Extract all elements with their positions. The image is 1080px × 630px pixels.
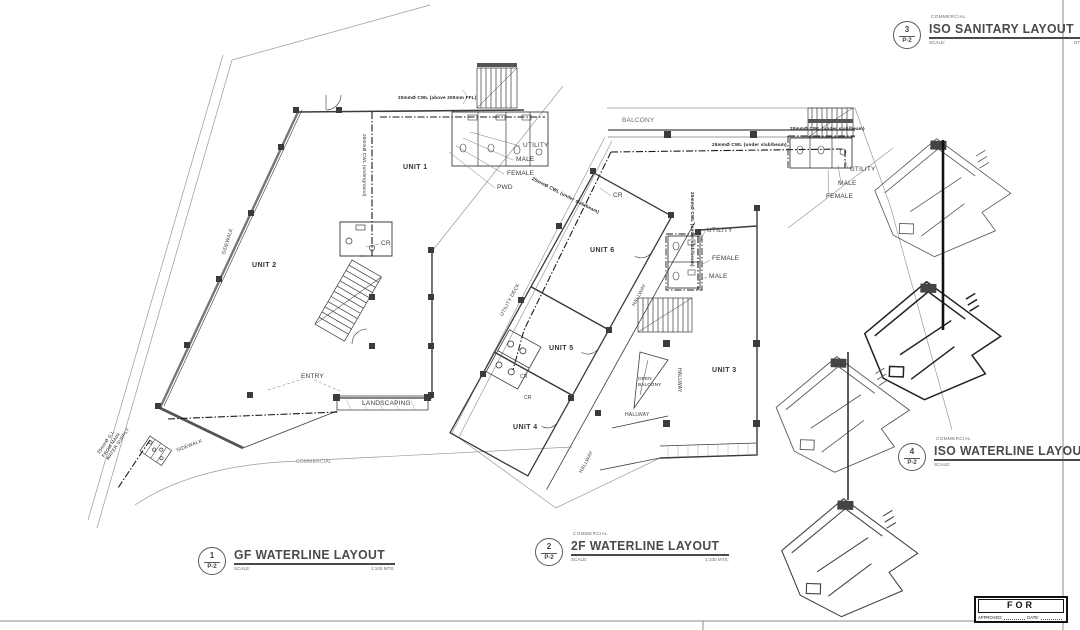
titleblock-iso-waterline: COMMERCIAL 4 P-2 ISO WATERLINE LAYOUT SC… — [898, 436, 1080, 471]
f2-male-mid-label: MALE — [709, 274, 728, 281]
gf-entry-label: ENTRY — [301, 374, 324, 381]
f2-unit3-label: UNIT 3 — [712, 367, 737, 374]
f2-cr-label-3: CR — [524, 396, 532, 401]
titleblock-2f-title: 2F WATERLINE LAYOUT — [571, 538, 719, 553]
detail-number: 2 — [547, 543, 551, 551]
titleblock-2f-category: COMMERCIAL — [573, 531, 729, 538]
titleblock-gf: 1 P-2 GF WATERLINE LAYOUT SCALE: 1:100 M… — [198, 540, 395, 575]
iso-sanitary-drawing — [863, 137, 1013, 403]
date-label: DATE: — [1027, 615, 1039, 620]
f2-male-tr-label: MALE — [838, 181, 857, 188]
gf-landscaping-label: LANDSCAPING — [362, 401, 411, 408]
titleblock-2f: COMMERCIAL 2 P-2 2F WATERLINE LAYOUT SCA… — [535, 531, 729, 566]
gf-leader-lines — [268, 90, 520, 391]
titleblock-iso-sanitary-category: COMMERCIAL — [931, 14, 1080, 21]
titleblock-iso-waterline-detail-bubble: 4 P-2 — [898, 443, 926, 471]
gf-unit2-label: UNIT 2 — [252, 262, 277, 269]
waterline-pipes — [118, 112, 855, 488]
titleblock-gf-title: GF WATERLINE LAYOUT — [234, 547, 385, 562]
for-permit-stamp-title: FOR PERMIT — [978, 599, 1064, 613]
titleblock-iso-sanitary-detail-bubble: 3 P-2 — [893, 21, 921, 49]
drawing-sheet: UNIT 1 UNIT 2 CR UTILITY MALE FEMALE PWD… — [0, 0, 1080, 630]
scale-label: SCALE: — [234, 566, 250, 571]
gf-columns — [155, 107, 434, 409]
gf-cwl-underground-note: 20mmØ CWL (underground) — [361, 134, 366, 197]
sheet-number: P-2 — [902, 38, 911, 44]
gf-cr-label: CR — [381, 241, 391, 248]
scale-label: SCALE: — [571, 557, 587, 562]
f2-cwl20-note-tr: 20mmØ CWL (under slab/beam) — [790, 127, 865, 132]
titleblock-2f-detail-bubble: 2 P-2 — [535, 538, 563, 566]
gf-female-label: FEMALE — [507, 171, 534, 178]
f2-hallway-label-3: HALLWAY — [625, 413, 649, 418]
f2-female-tr-label: FEMALE — [826, 194, 853, 201]
titleblock-iso-waterline-title: ISO WATERLINE LAYOUT — [934, 443, 1080, 458]
scale-value: 1:100 MTS. — [371, 566, 395, 571]
f2-unit5-label: UNIT 5 — [549, 345, 574, 352]
scale-label: SCALE: — [929, 40, 945, 45]
f2-unit6-label: UNIT 6 — [590, 247, 615, 254]
f2-utility-tr-label: UTILITY — [850, 167, 876, 174]
gf-cwl-note: 20mmØ CWL (above 200mm FFL) — [398, 96, 476, 101]
gf-pwd-label: PWD — [497, 185, 513, 192]
titleblock-iso-sanitary: COMMERCIAL 3 P-2 ISO SANITARY LAYOUT SCA… — [893, 14, 1080, 49]
sheet-number: P-2 — [907, 460, 916, 466]
f2-utility-mid-label: UTILITY — [707, 228, 733, 235]
scale-value: 1:100 MTS. — [705, 557, 729, 562]
f2-unit4-label: UNIT 4 — [513, 424, 538, 431]
gf-commercial-label: COMMERCIAL — [296, 460, 332, 465]
f2-cwl25-note-vert: 25mmØ CWL (under slab/beam) — [689, 192, 694, 267]
detail-number: 1 — [210, 552, 214, 560]
f2-cr-label-2: CR — [520, 375, 528, 380]
approved-label: APPROVED: — [978, 615, 1002, 620]
scale-label: SCALE: — [934, 462, 950, 467]
titleblock-iso-sanitary-title: ISO SANITARY LAYOUT — [929, 21, 1074, 36]
gf-male-label: MALE — [516, 157, 535, 164]
detail-number: 3 — [905, 26, 909, 34]
detail-number: 4 — [910, 448, 914, 456]
date-fill-line — [1041, 615, 1062, 620]
f2-cwl25-note-h: 25mmØ CWL (under slab/beam) — [712, 143, 787, 148]
for-permit-stamp: FOR PERMIT APPROVED: DATE: — [974, 596, 1068, 623]
f2-female-mid-label: FEMALE — [712, 256, 739, 263]
f2-open-balcony-label: OPEN BALCONY — [638, 376, 661, 387]
iso-waterline-drawing — [774, 352, 920, 619]
f2-hallway-label-2: HALLWAY — [676, 368, 681, 392]
sheet-number: P-2 — [207, 564, 216, 570]
titleblock-gf-category — [236, 540, 395, 547]
sheet-number: P-2 — [544, 555, 553, 561]
titleblock-gf-detail-bubble: 1 P-2 — [198, 547, 226, 575]
f2-cr-label: CR — [613, 193, 623, 200]
approved-fill-line — [1004, 615, 1025, 620]
gf-unit1-label: UNIT 1 — [403, 164, 428, 171]
scale-value: NTS — [1074, 40, 1080, 45]
titleblock-iso-waterline-category: COMMERCIAL — [936, 436, 1080, 443]
f2-balcony-label: BALCONY — [622, 118, 654, 125]
gf-plan-drawing — [140, 63, 548, 465]
gf-utility-label: UTILITY — [523, 143, 549, 150]
site-boundary-lines — [88, 5, 952, 528]
